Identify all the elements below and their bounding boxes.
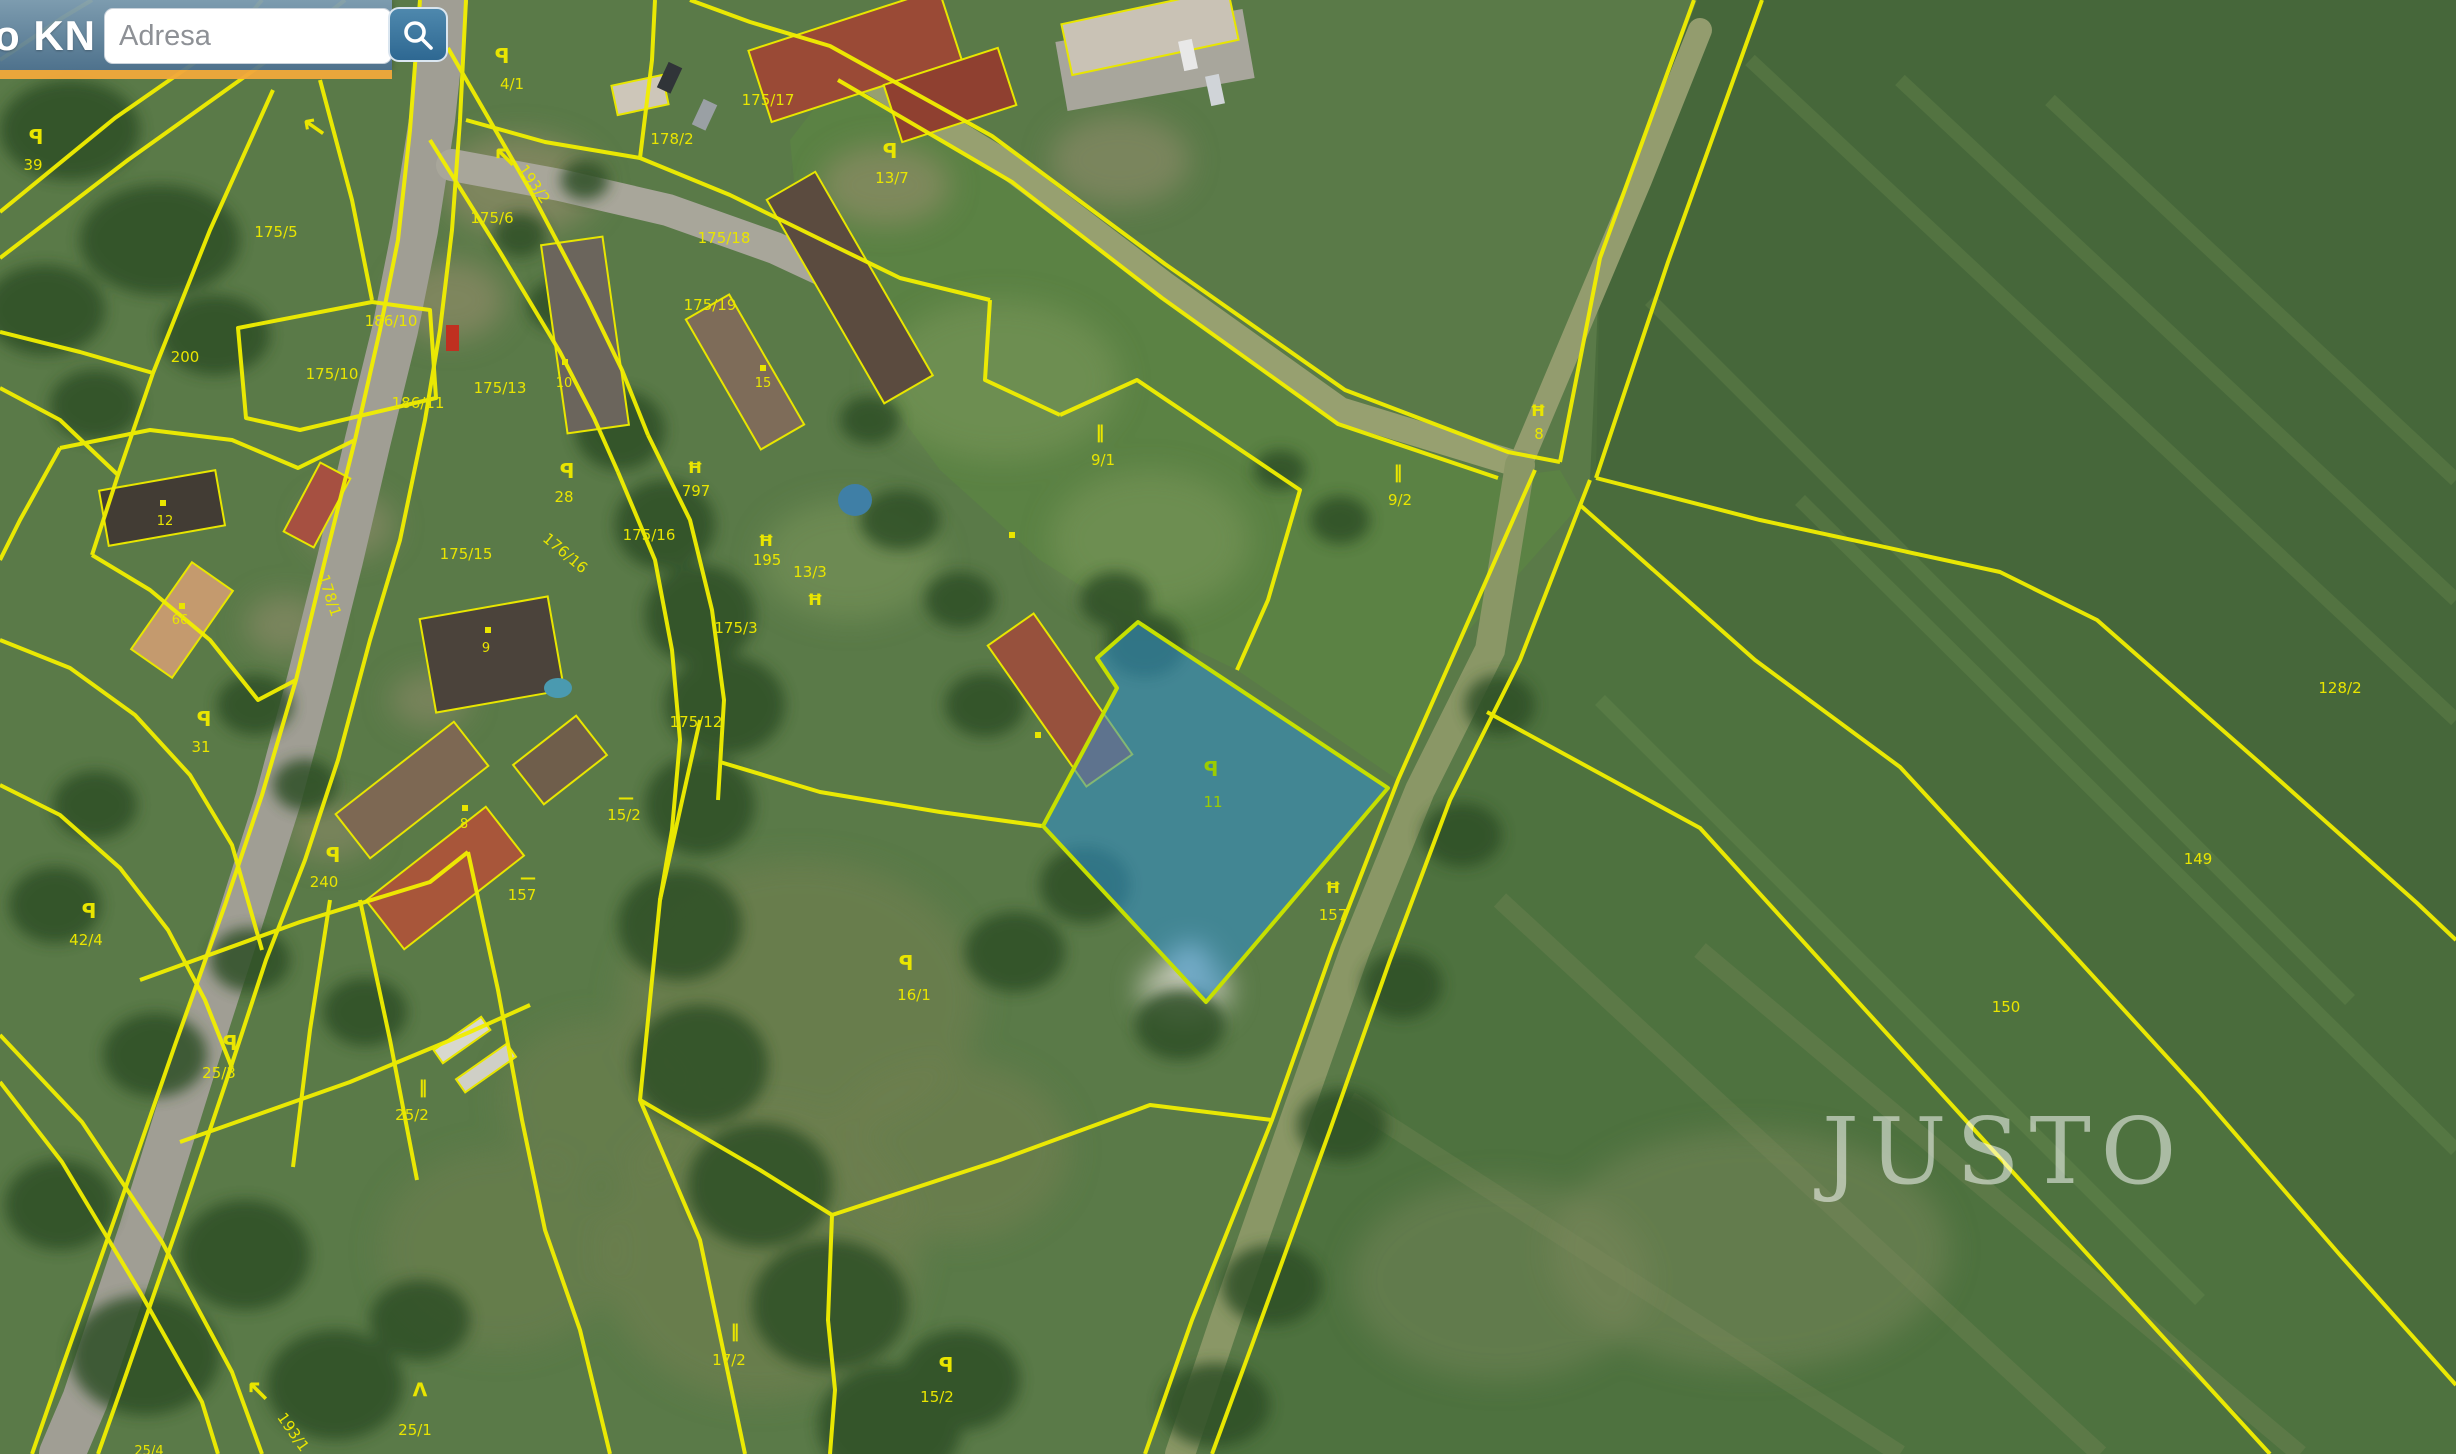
p-symbol-icon: P (82, 899, 97, 923)
dbar-symbol-icon: ‖ (1096, 422, 1105, 443)
building-marker-dot (462, 805, 468, 811)
parcel-label-4/1: 4/1 (500, 75, 524, 93)
dash-symbol-icon: — (520, 868, 536, 887)
parcel-label-200: 200 (171, 348, 200, 366)
building-marker-dot (1035, 732, 1041, 738)
gate-symbol-icon: Ħ (1325, 878, 1341, 897)
gate-symbol-icon: Ħ (758, 531, 774, 550)
building-marker-dot (760, 365, 766, 371)
gate-symbol-icon: Ħ (1530, 401, 1546, 420)
parcel-label-13/3: 13/3 (793, 563, 827, 581)
p-symbol-icon: P (899, 951, 914, 975)
building-marker-dot (485, 627, 491, 633)
parcel-label-17/2: 17/2 (712, 1351, 746, 1369)
parcel-label-175/6: 175/6 (470, 209, 513, 227)
p-symbol-icon: P (1204, 757, 1219, 781)
parcel-label-11: 11 (1203, 793, 1222, 811)
search-button[interactable] (388, 7, 448, 62)
parcel-label-175/13: 175/13 (474, 379, 527, 397)
map-canvas[interactable]: 39P200175/5186/10175/10186/11175/1310126… (0, 0, 2456, 1454)
building-marker-dot (160, 500, 166, 506)
road-direction-arrow-icon: ↖ (245, 1375, 270, 1410)
parcel-label-8: 8 (460, 817, 468, 832)
dash-symbol-icon: — (618, 788, 634, 807)
parcel-label-186/11: 186/11 (392, 394, 445, 412)
p-symbol-icon: P (883, 139, 898, 163)
parcel-label-150: 150 (1992, 998, 2021, 1016)
gate-symbol-icon: Ħ (807, 590, 823, 609)
parcel-label-15/2: 15/2 (920, 1388, 954, 1406)
parcel-label-175/5: 175/5 (254, 223, 297, 241)
parcel-label-66: 66 (172, 613, 189, 628)
parcel-label-12: 12 (157, 514, 174, 529)
parcel-label-13/7: 13/7 (875, 169, 909, 187)
address-search-input[interactable] (104, 8, 392, 64)
parcel-label-28: 28 (554, 488, 573, 506)
parcel-label-175/3: 175/3 (714, 619, 757, 637)
parcel-label-31: 31 (191, 738, 210, 756)
parcel-label-25/4: 25/4 (134, 1444, 163, 1454)
road-direction-arrow-icon: ↖ (492, 141, 517, 176)
p-symbol-icon: P (326, 843, 341, 867)
parcel-label-128/2: 128/2 (2318, 679, 2361, 697)
parcel-label-240: 240 (310, 873, 339, 891)
parcel-label-157: 157 (1319, 906, 1348, 924)
parcel-label-797: 797 (682, 482, 711, 500)
gate-symbol-icon: Ħ (687, 458, 703, 477)
parcel-label-149: 149 (2184, 850, 2213, 868)
parcel-label-15: 15 (755, 376, 772, 391)
building-marker-dot (179, 603, 185, 609)
cadastre-map-app: 39P200175/5186/10175/10186/11175/1310126… (0, 0, 2456, 1454)
parcel-label-39: 39 (23, 156, 42, 174)
parcel-label-15/2: 15/2 (607, 806, 641, 824)
building-marker-dot (562, 359, 568, 365)
dbar-symbol-icon: ‖ (419, 1077, 428, 1098)
parcel-label-25/1: 25/1 (398, 1421, 432, 1439)
p-symbol-icon: P (560, 459, 575, 483)
parcel-label-9/1: 9/1 (1091, 451, 1115, 469)
parcel-label-10: 10 (556, 376, 573, 391)
parcel-label-186/10: 186/10 (365, 312, 418, 330)
parcel-label-175/15: 175/15 (440, 545, 493, 563)
magnifier-icon (401, 18, 435, 52)
parcel-label-25/2: 25/2 (395, 1106, 429, 1124)
parcel-label-175/12: 175/12 (670, 713, 723, 731)
parcel-label-178/2: 178/2 (650, 130, 693, 148)
parcel-label-25/3: 25/3 (202, 1064, 236, 1082)
parcel-label-42/4: 42/4 (69, 931, 103, 949)
parcel-label-157: 157 (508, 886, 537, 904)
p-symbol-icon: P (197, 707, 212, 731)
parcel-label-195: 195 (753, 551, 782, 569)
app-title: o KN (0, 12, 96, 60)
parcel-label-175/16: 175/16 (623, 526, 676, 544)
parcel-label-175/18: 175/18 (698, 229, 751, 247)
parcel-label-175/19: 175/19 (684, 296, 737, 314)
p-symbol-icon: P (939, 1353, 954, 1377)
lambda-symbol-icon: Λ (413, 1379, 428, 1401)
p-symbol-icon: P (223, 1031, 238, 1055)
parcel-label-175/17: 175/17 (742, 91, 795, 109)
parcel-label-175/10: 175/10 (306, 365, 359, 383)
building-marker-dot (1009, 532, 1015, 538)
parcel-label-9/2: 9/2 (1388, 491, 1412, 509)
parcel-label-16/1: 16/1 (897, 986, 931, 1004)
dbar-symbol-icon: ‖ (731, 1321, 740, 1342)
dbar-symbol-icon: ‖ (1394, 462, 1403, 483)
justo-watermark: JUSTO (1822, 1098, 2152, 1205)
header-accent-strip (0, 70, 392, 79)
parcel-label-9: 9 (482, 641, 490, 656)
p-symbol-icon: P (29, 125, 44, 149)
p-symbol-icon: P (495, 44, 510, 68)
parcel-label-8: 8 (1534, 425, 1544, 443)
